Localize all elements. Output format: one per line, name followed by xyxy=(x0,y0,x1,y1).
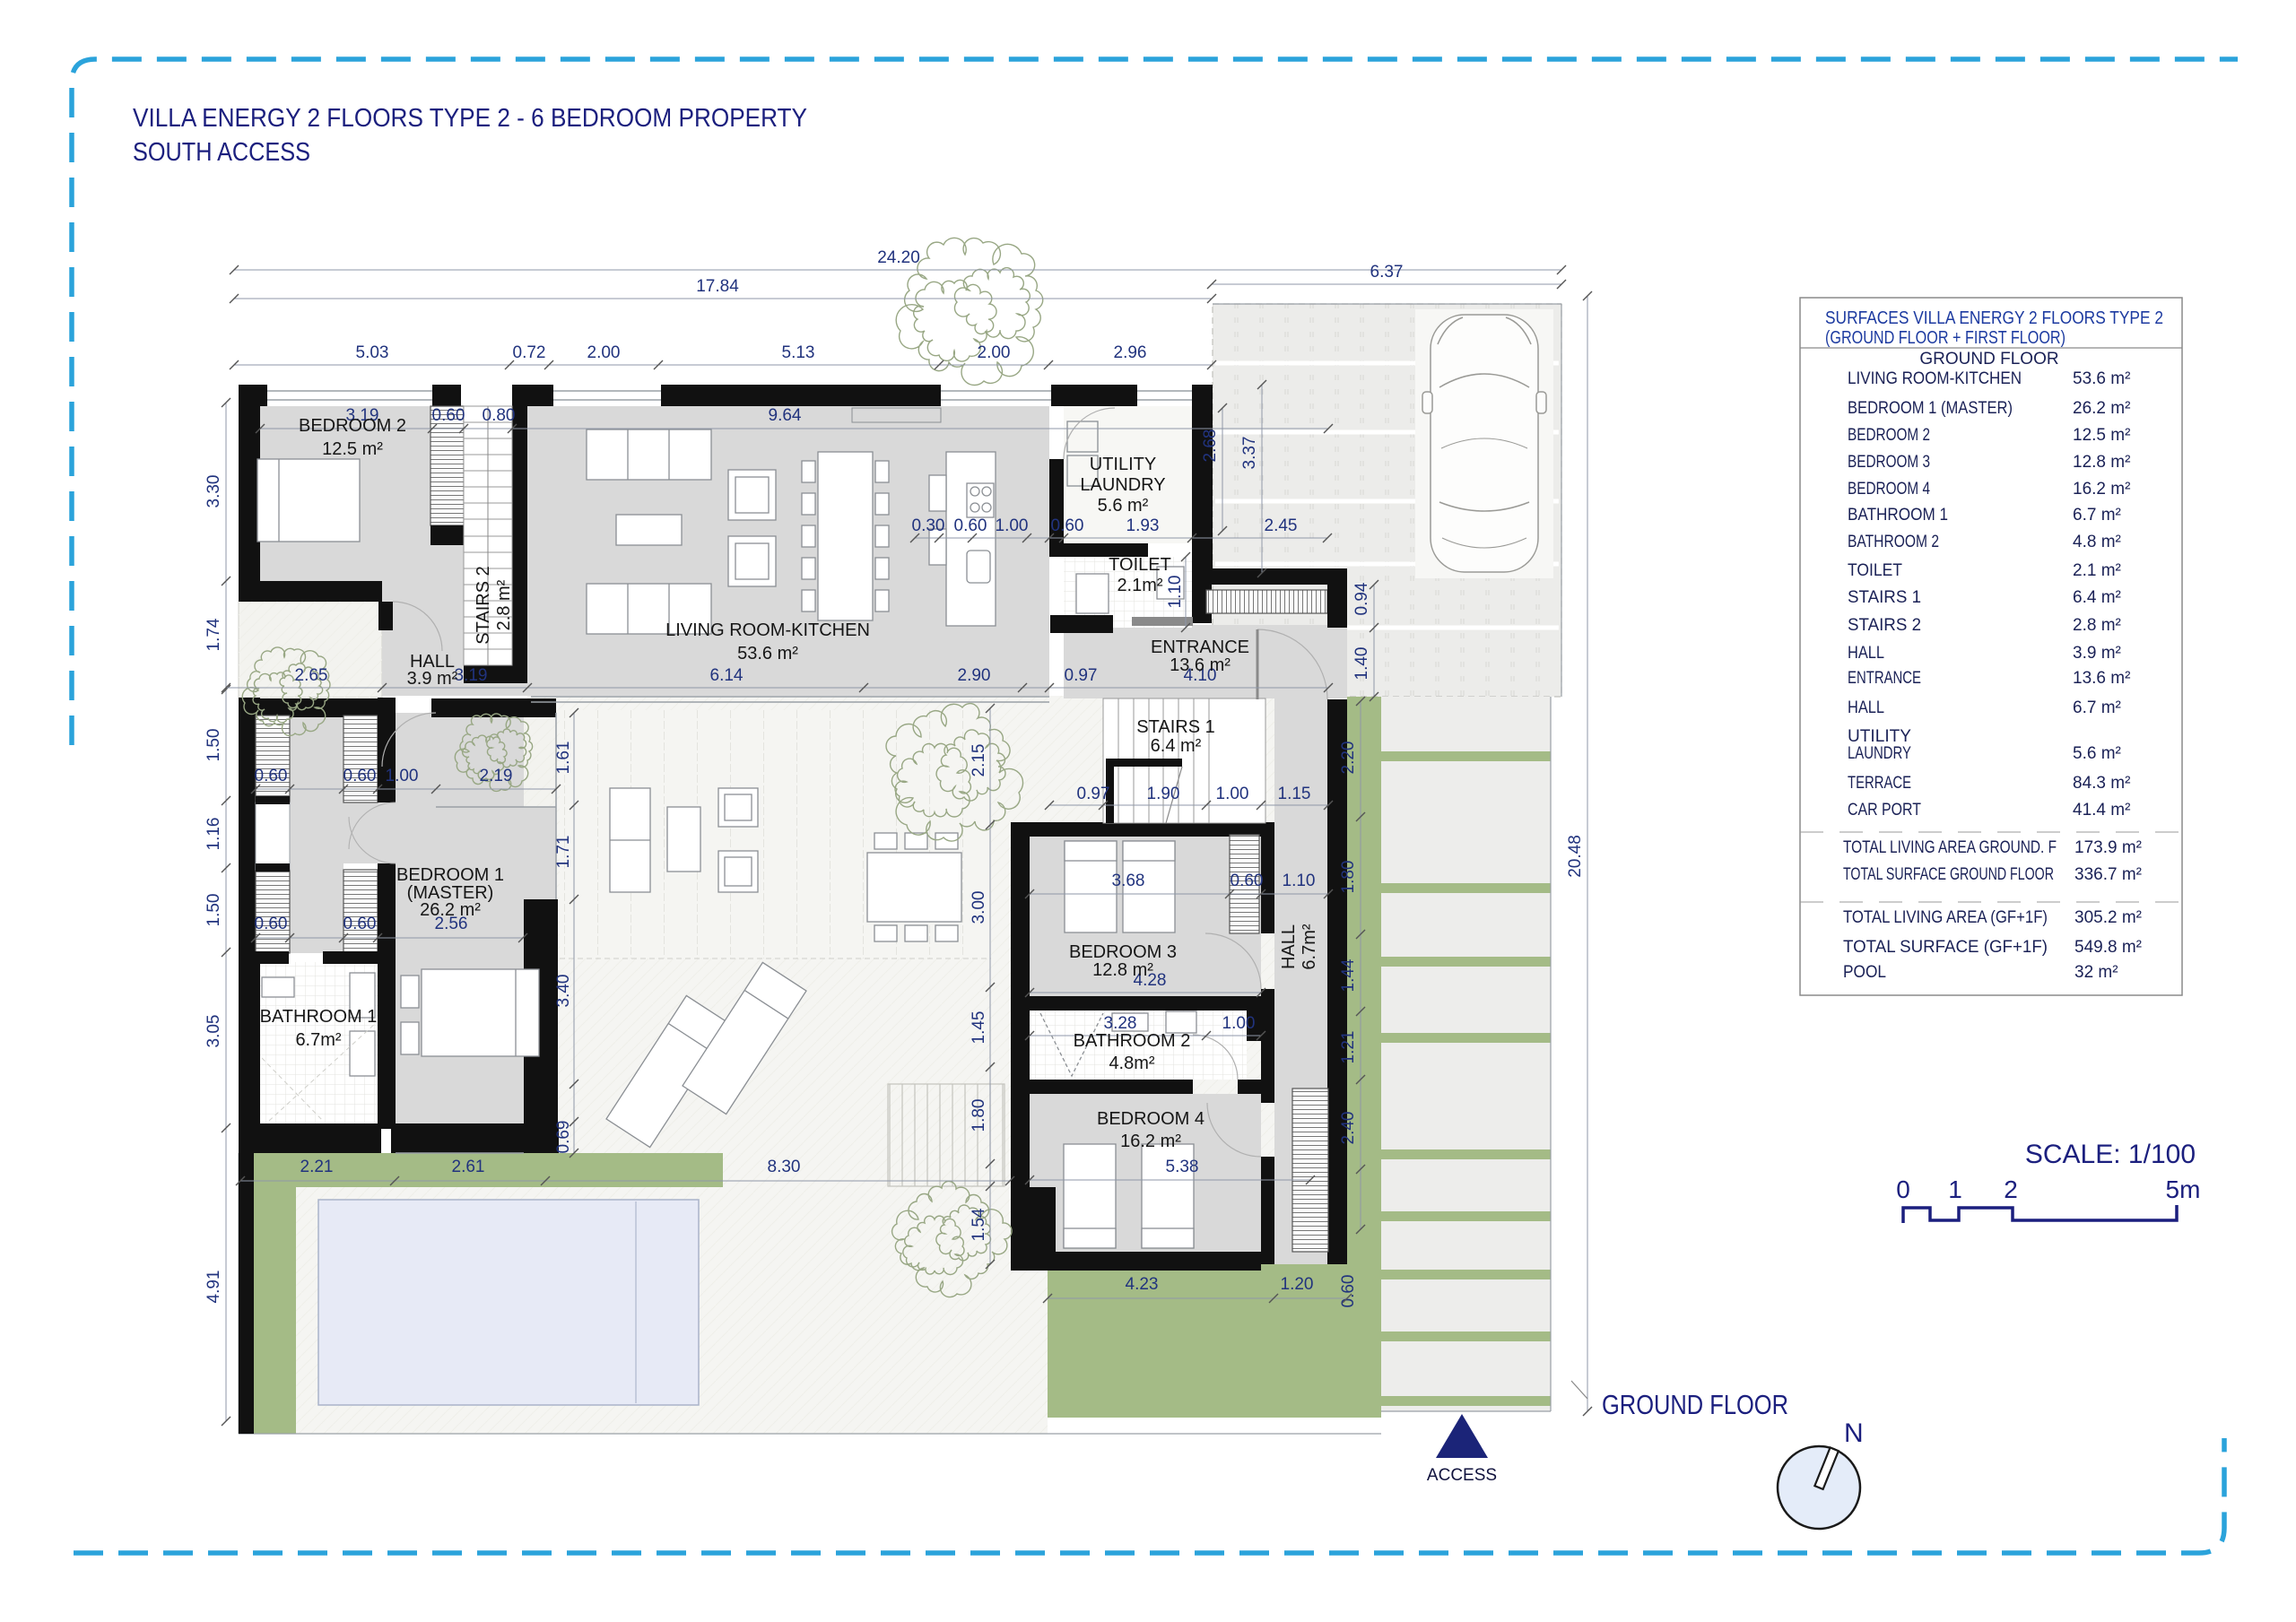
svg-text:0.60: 0.60 xyxy=(1231,872,1264,890)
svg-text:0.60: 0.60 xyxy=(255,915,288,933)
svg-text:TOILET: TOILET xyxy=(1109,555,1171,575)
svg-text:2: 2 xyxy=(2004,1175,2018,1203)
svg-text:UTILITY: UTILITY xyxy=(1090,455,1156,474)
svg-text:3.00: 3.00 xyxy=(970,891,988,924)
svg-text:TOTAL SURFACE (GF+1F): TOTAL SURFACE (GF+1F) xyxy=(1843,938,2048,957)
svg-text:1.71: 1.71 xyxy=(554,836,573,869)
svg-text:ENTRANCE: ENTRANCE xyxy=(1151,638,1249,657)
svg-text:2.20: 2.20 xyxy=(1339,742,1358,775)
svg-text:BATHROOM 1: BATHROOM 1 xyxy=(260,1007,378,1027)
svg-text:N: N xyxy=(1844,1418,1864,1448)
svg-text:HALL: HALL xyxy=(1279,924,1299,969)
svg-text:32 m²: 32 m² xyxy=(2074,963,2118,982)
svg-text:17.84: 17.84 xyxy=(696,277,739,296)
svg-text:2.65: 2.65 xyxy=(295,666,328,685)
svg-text:4.8m²: 4.8m² xyxy=(1109,1054,1154,1073)
svg-text:2.00: 2.00 xyxy=(587,343,621,362)
svg-text:0.72: 0.72 xyxy=(513,343,546,362)
svg-text:2.61: 2.61 xyxy=(452,1158,485,1176)
svg-text:(GROUND FLOOR + FIRST FLOOR): (GROUND FLOOR + FIRST FLOOR) xyxy=(1825,328,2066,348)
svg-text:41.4 m²: 41.4 m² xyxy=(2073,801,2130,820)
svg-text:12.5 m²: 12.5 m² xyxy=(2073,426,2130,445)
svg-text:2.19: 2.19 xyxy=(480,767,513,785)
svg-text:1.21: 1.21 xyxy=(1339,1031,1358,1064)
svg-text:6.4 m²: 6.4 m² xyxy=(1151,736,1202,756)
svg-text:5.6 m²: 5.6 m² xyxy=(1098,496,1149,516)
svg-text:LAUNDRY: LAUNDRY xyxy=(1080,475,1165,495)
svg-text:3.40: 3.40 xyxy=(554,975,573,1008)
svg-text:2.15: 2.15 xyxy=(970,744,988,777)
svg-text:1.90: 1.90 xyxy=(1147,785,1180,803)
svg-text:BATHROOM 2: BATHROOM 2 xyxy=(1074,1031,1191,1051)
svg-text:5.6 m²: 5.6 m² xyxy=(2073,744,2121,763)
svg-text:TOILET: TOILET xyxy=(1848,561,1902,580)
svg-text:3.9 m²: 3.9 m² xyxy=(407,669,458,689)
svg-text:6.7 m²: 6.7 m² xyxy=(2073,506,2121,525)
svg-text:TOTAL LIVING AREA (GF+1F): TOTAL LIVING AREA (GF+1F) xyxy=(1843,908,2048,927)
svg-text:STAIRS 1: STAIRS 1 xyxy=(1136,717,1214,737)
svg-text:0.60: 0.60 xyxy=(432,406,465,425)
svg-text:1.40: 1.40 xyxy=(1352,647,1371,681)
svg-text:POOL: POOL xyxy=(1843,963,1886,982)
svg-text:3.37: 3.37 xyxy=(1240,437,1259,470)
svg-text:12.8 m²: 12.8 m² xyxy=(1092,960,1153,980)
svg-text:1.45: 1.45 xyxy=(970,1011,988,1045)
svg-text:2.40: 2.40 xyxy=(1339,1112,1358,1145)
svg-text:84.3 m²: 84.3 m² xyxy=(2073,774,2130,793)
svg-text:1.00: 1.00 xyxy=(1222,1014,1256,1033)
svg-text:0.60: 0.60 xyxy=(344,915,377,933)
svg-text:2.45: 2.45 xyxy=(1265,516,1298,535)
svg-text:5.13: 5.13 xyxy=(782,343,815,362)
svg-text:12.8 m²: 12.8 m² xyxy=(2073,453,2130,472)
svg-text:TERRACE: TERRACE xyxy=(1848,774,1911,793)
svg-text:1.54: 1.54 xyxy=(970,1208,988,1241)
svg-text:BEDROOM 2: BEDROOM 2 xyxy=(1848,426,1930,445)
svg-text:1.20: 1.20 xyxy=(1281,1275,1314,1294)
svg-text:305.2 m²: 305.2 m² xyxy=(2074,908,2142,927)
svg-text:VILLA ENERGY 2 FLOORS TYPE 2 -: VILLA ENERGY 2 FLOORS TYPE 2 - 6 BEDROOM… xyxy=(133,104,807,133)
svg-text:3.9 m²: 3.9 m² xyxy=(2073,644,2121,663)
svg-text:5m: 5m xyxy=(2166,1175,2201,1203)
svg-text:2.68: 2.68 xyxy=(1201,429,1220,463)
svg-text:BATHROOM 1: BATHROOM 1 xyxy=(1848,506,1948,525)
svg-text:BEDROOM 1 (MASTER): BEDROOM 1 (MASTER) xyxy=(1848,399,2013,418)
svg-text:13.6 m²: 13.6 m² xyxy=(2073,669,2130,688)
svg-text:0.60: 0.60 xyxy=(1051,516,1084,535)
svg-text:1.00: 1.00 xyxy=(1216,785,1249,803)
svg-text:1.74: 1.74 xyxy=(204,618,223,651)
svg-text:3.68: 3.68 xyxy=(1112,872,1145,890)
svg-text:2.8 m²: 2.8 m² xyxy=(494,579,514,630)
svg-text:173.9 m²: 173.9 m² xyxy=(2074,838,2142,857)
svg-text:12.5 m²: 12.5 m² xyxy=(322,439,383,459)
svg-text:1.61: 1.61 xyxy=(554,742,573,775)
svg-text:2.21: 2.21 xyxy=(300,1158,334,1176)
svg-text:0: 0 xyxy=(1896,1175,1910,1203)
svg-text:2.1 m²: 2.1 m² xyxy=(2073,561,2121,580)
svg-text:53.6 m²: 53.6 m² xyxy=(737,644,798,664)
svg-text:20.48: 20.48 xyxy=(1566,835,1585,878)
svg-text:GROUND FLOOR: GROUND FLOOR xyxy=(1919,350,2058,369)
svg-text:1.10: 1.10 xyxy=(1166,576,1185,609)
svg-text:1.10: 1.10 xyxy=(1283,872,1316,890)
svg-text:24.20: 24.20 xyxy=(877,248,920,267)
svg-text:1.00: 1.00 xyxy=(386,767,419,785)
svg-text:6.7m²: 6.7m² xyxy=(1300,924,1319,969)
svg-text:0.60: 0.60 xyxy=(954,516,987,535)
svg-text:549.8 m²: 549.8 m² xyxy=(2074,938,2142,957)
svg-text:BATHROOM 2: BATHROOM 2 xyxy=(1848,533,1939,551)
svg-text:STAIRS 2: STAIRS 2 xyxy=(474,566,493,644)
svg-text:1.00: 1.00 xyxy=(996,516,1029,535)
svg-text:2.8 m²: 2.8 m² xyxy=(2073,616,2121,635)
svg-text:3.28: 3.28 xyxy=(1104,1014,1137,1033)
svg-text:2.90: 2.90 xyxy=(958,666,991,685)
svg-text:LIVING ROOM-KITCHEN: LIVING ROOM-KITCHEN xyxy=(1848,369,2022,388)
svg-text:UTILITY: UTILITY xyxy=(1848,727,1911,746)
svg-text:STAIRS 1: STAIRS 1 xyxy=(1848,588,1921,607)
svg-text:16.2 m²: 16.2 m² xyxy=(1120,1132,1181,1151)
svg-text:BEDROOM 2: BEDROOM 2 xyxy=(299,416,406,436)
svg-text:26.2 m²: 26.2 m² xyxy=(420,900,481,920)
svg-text:0.60: 0.60 xyxy=(255,767,288,785)
svg-text:6.4 m²: 6.4 m² xyxy=(2073,588,2121,607)
svg-text:BEDROOM 3: BEDROOM 3 xyxy=(1848,453,1930,472)
svg-text:GROUND FLOOR: GROUND FLOOR xyxy=(1602,1389,1788,1420)
svg-text:SOUTH ACCESS: SOUTH ACCESS xyxy=(133,138,310,167)
svg-text:9.64: 9.64 xyxy=(769,406,802,425)
svg-text:6.14: 6.14 xyxy=(710,666,744,685)
svg-text:2.00: 2.00 xyxy=(978,343,1011,362)
svg-text:TOTAL SURFACE GROUND FLOOR: TOTAL SURFACE GROUND FLOOR xyxy=(1843,865,2054,884)
svg-text:0.80: 0.80 xyxy=(483,406,516,425)
svg-text:SURFACES VILLA ENERGY 2 FLOORS: SURFACES VILLA ENERGY 2 FLOORS TYPE 2 xyxy=(1825,308,2163,328)
svg-text:2.1m²: 2.1m² xyxy=(1117,576,1162,595)
svg-text:4.23: 4.23 xyxy=(1126,1275,1159,1294)
svg-text:336.7 m²: 336.7 m² xyxy=(2074,865,2142,884)
svg-text:BEDROOM 4: BEDROOM 4 xyxy=(1097,1109,1205,1129)
svg-text:0.97: 0.97 xyxy=(1077,785,1110,803)
svg-text:1.80: 1.80 xyxy=(970,1099,988,1132)
svg-text:0.60: 0.60 xyxy=(1339,1275,1358,1308)
svg-text:BEDROOM 4: BEDROOM 4 xyxy=(1848,480,1930,499)
svg-text:1.50: 1.50 xyxy=(204,729,223,762)
svg-text:LAUNDRY: LAUNDRY xyxy=(1848,744,1911,763)
svg-text:BEDROOM 1: BEDROOM 1 xyxy=(396,865,504,885)
svg-text:4.91: 4.91 xyxy=(204,1271,223,1304)
svg-text:0.69: 0.69 xyxy=(554,1121,573,1154)
svg-text:1.16: 1.16 xyxy=(204,818,223,851)
svg-text:5.38: 5.38 xyxy=(1166,1158,1199,1176)
svg-text:1.15: 1.15 xyxy=(1278,785,1311,803)
svg-text:SCALE: 1/100: SCALE: 1/100 xyxy=(2025,1140,2196,1169)
svg-text:CAR PORT: CAR PORT xyxy=(1848,801,1921,820)
svg-text:BEDROOM 3: BEDROOM 3 xyxy=(1069,942,1177,962)
svg-text:3.19: 3.19 xyxy=(455,666,488,685)
svg-text:8.30: 8.30 xyxy=(768,1158,801,1176)
svg-text:1.80: 1.80 xyxy=(1339,861,1358,894)
svg-text:1.93: 1.93 xyxy=(1126,516,1160,535)
svg-text:TOTAL LIVING AREA GROUND. F: TOTAL LIVING AREA GROUND. F xyxy=(1843,838,2057,857)
svg-text:3.05: 3.05 xyxy=(204,1015,223,1048)
svg-text:5.03: 5.03 xyxy=(356,343,389,362)
svg-text:0.60: 0.60 xyxy=(344,767,377,785)
svg-text:STAIRS 2: STAIRS 2 xyxy=(1848,616,1921,635)
svg-text:0.94: 0.94 xyxy=(1352,582,1371,615)
svg-text:6.7m²: 6.7m² xyxy=(295,1030,341,1050)
svg-text:ENTRANCE: ENTRANCE xyxy=(1848,669,1921,688)
svg-text:1.44: 1.44 xyxy=(1339,958,1358,992)
svg-text:6.7 m²: 6.7 m² xyxy=(2073,698,2121,717)
svg-text:0.30: 0.30 xyxy=(912,516,945,535)
svg-text:0.97: 0.97 xyxy=(1065,666,1098,685)
svg-text:HALL: HALL xyxy=(1848,698,1884,717)
svg-text:3.30: 3.30 xyxy=(204,475,223,508)
svg-text:LIVING ROOM-KITCHEN: LIVING ROOM-KITCHEN xyxy=(665,620,870,640)
svg-text:HALL: HALL xyxy=(1848,644,1884,663)
svg-text:1: 1 xyxy=(1948,1175,1962,1203)
svg-text:4.8 m²: 4.8 m² xyxy=(2073,533,2121,551)
svg-text:13.6 m²: 13.6 m² xyxy=(1170,655,1231,675)
svg-text:1.50: 1.50 xyxy=(204,894,223,927)
svg-text:16.2 m²: 16.2 m² xyxy=(2073,480,2130,499)
svg-text:ACCESS: ACCESS xyxy=(1427,1466,1497,1485)
svg-text:53.6 m²: 53.6 m² xyxy=(2073,369,2130,388)
svg-text:26.2 m²: 26.2 m² xyxy=(2073,399,2130,418)
svg-text:2.96: 2.96 xyxy=(1114,343,1147,362)
svg-text:6.37: 6.37 xyxy=(1370,263,1404,282)
